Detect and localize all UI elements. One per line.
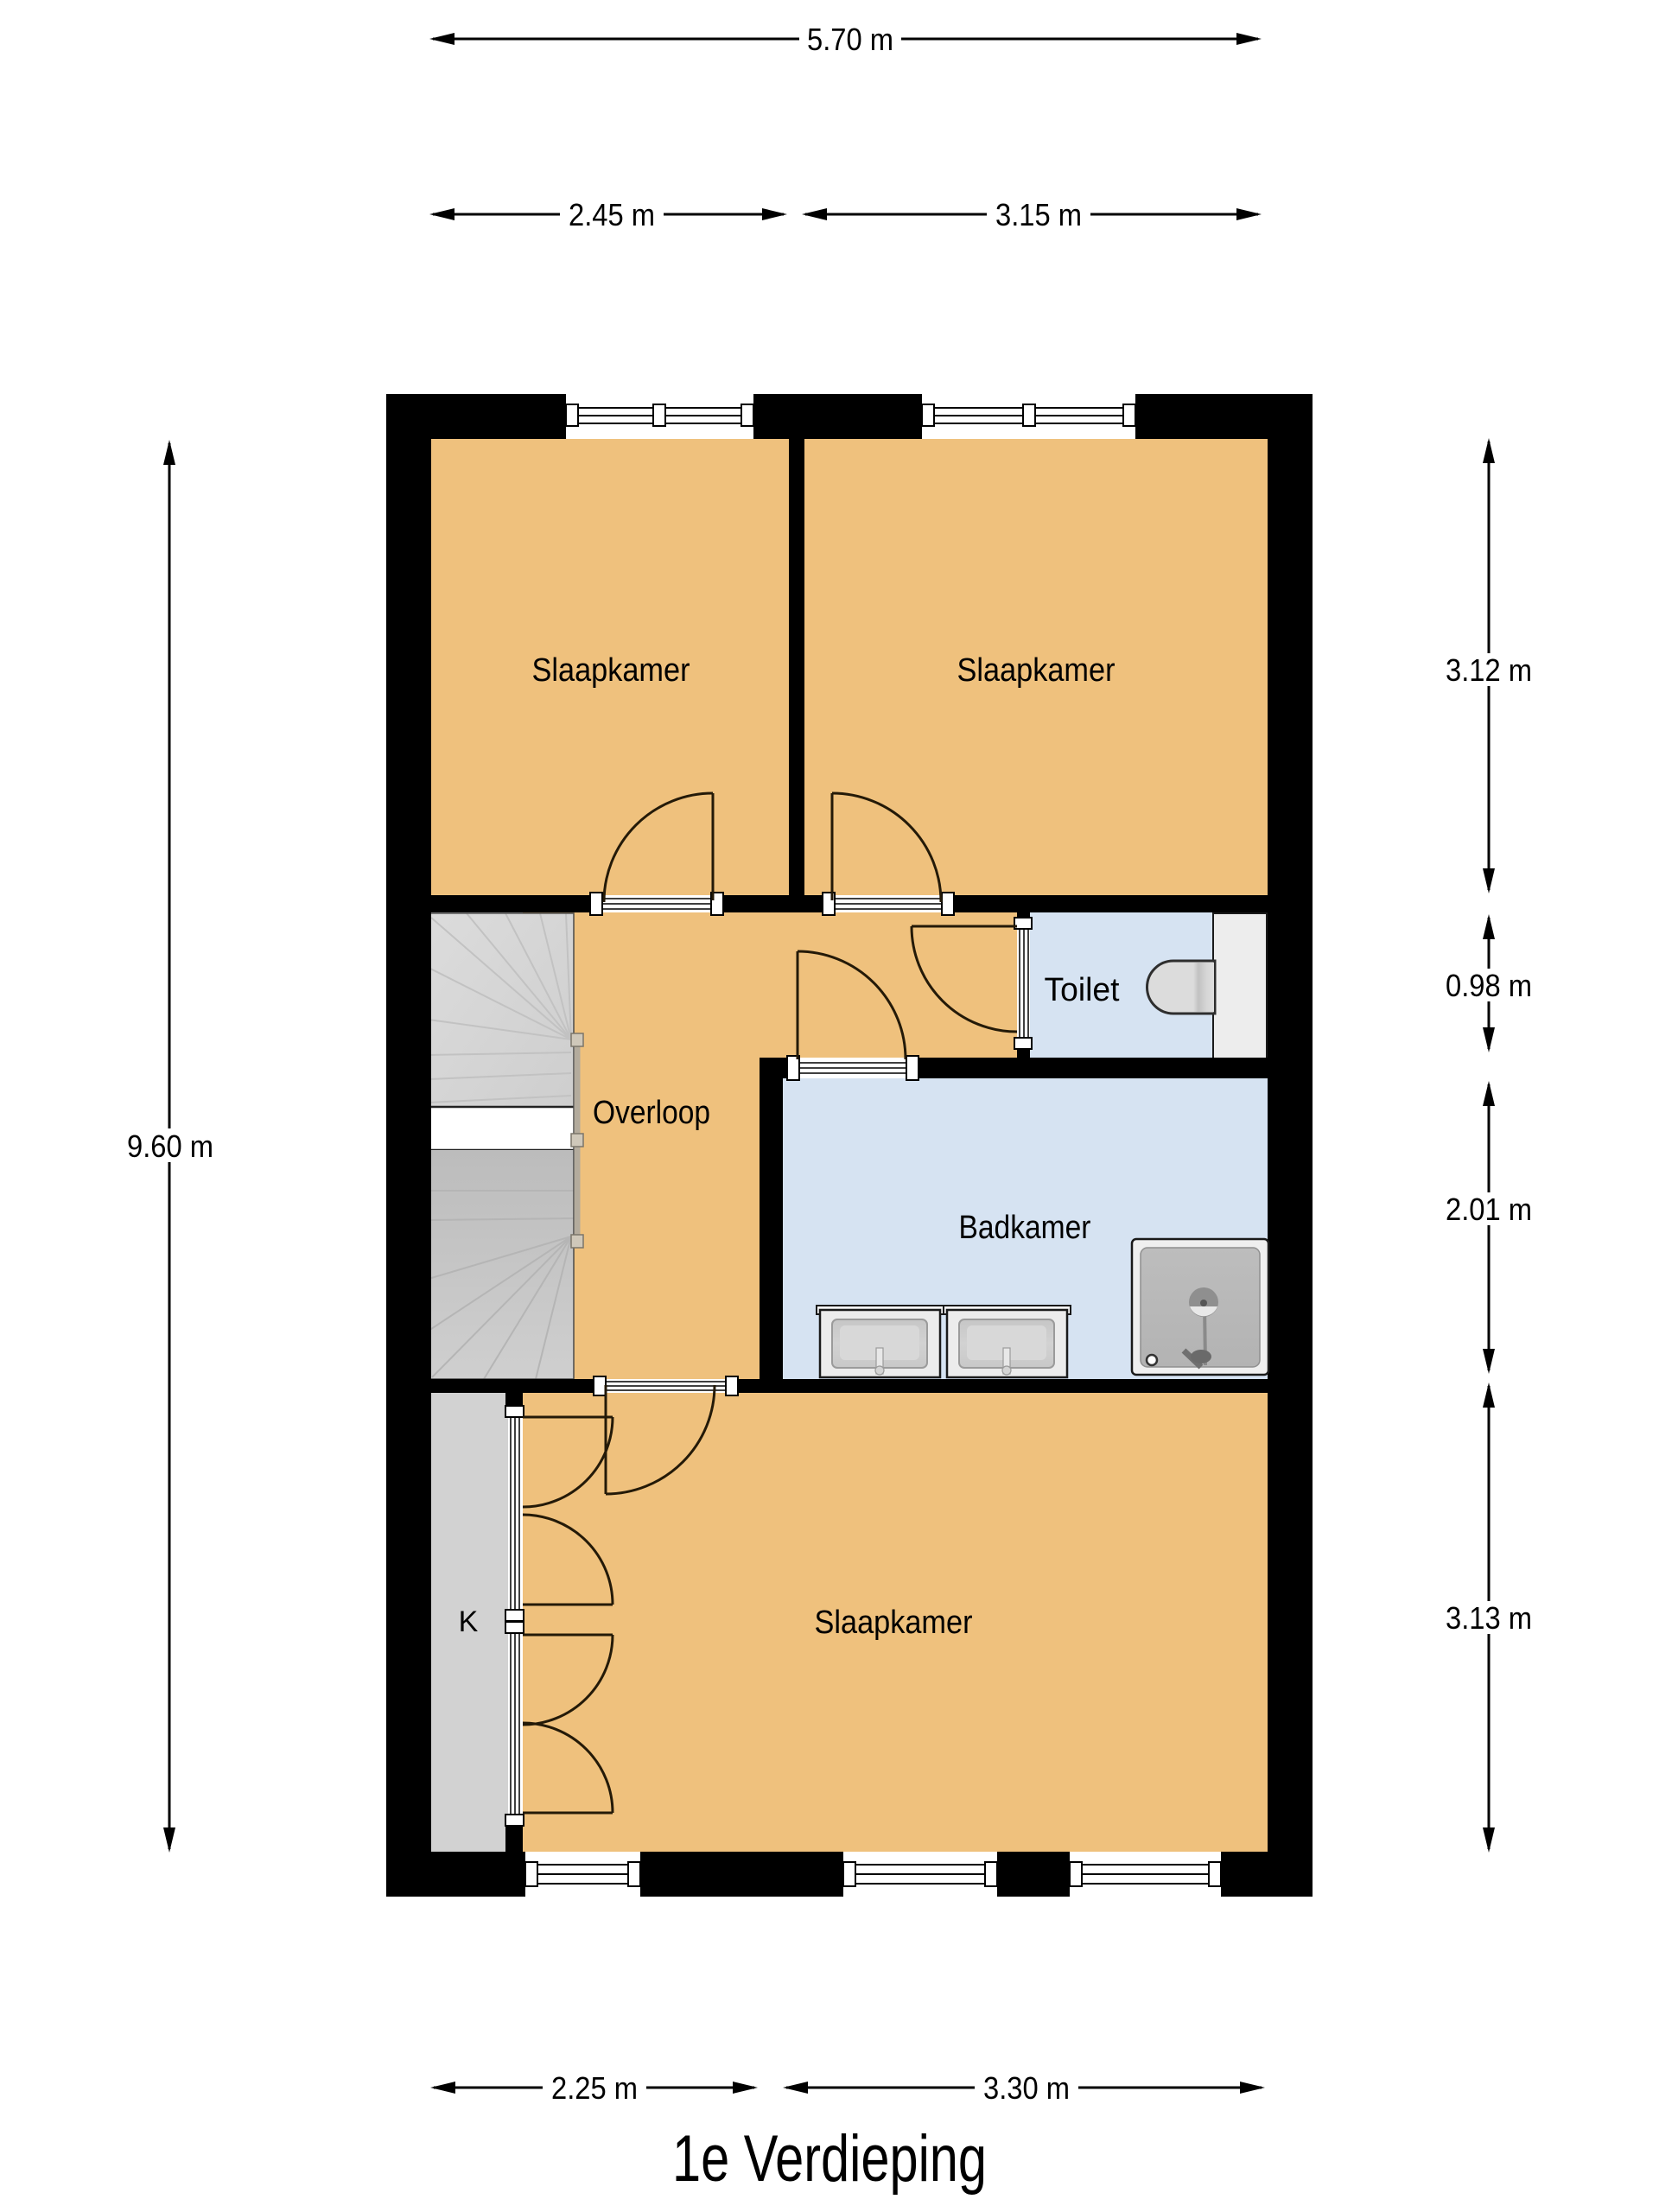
svg-text:9.60 m: 9.60 m <box>127 1128 213 1164</box>
svg-text:2.45 m: 2.45 m <box>569 197 655 232</box>
svg-text:K: K <box>459 1605 479 1638</box>
svg-text:Badkamer: Badkamer <box>959 1210 1091 1246</box>
svg-text:2.25 m: 2.25 m <box>551 2070 638 2106</box>
svg-text:Slaapkamer: Slaapkamer <box>815 1605 973 1641</box>
svg-text:Slaapkamer: Slaapkamer <box>957 652 1116 689</box>
svg-text:5.70 m: 5.70 m <box>807 22 893 57</box>
svg-text:3.30 m: 3.30 m <box>983 2070 1070 2106</box>
svg-text:3.15 m: 3.15 m <box>995 197 1082 232</box>
svg-text:Overloop: Overloop <box>593 1095 710 1131</box>
svg-text:1e Verdieping: 1e Verdieping <box>672 2122 987 2196</box>
svg-text:3.13 m: 3.13 m <box>1446 1600 1532 1636</box>
svg-text:3.12 m: 3.12 m <box>1446 652 1532 688</box>
svg-text:Slaapkamer: Slaapkamer <box>532 652 690 689</box>
svg-text:2.01 m: 2.01 m <box>1446 1192 1532 1227</box>
svg-text:Toilet: Toilet <box>1045 972 1120 1008</box>
svg-text:0.98 m: 0.98 m <box>1446 968 1532 1003</box>
